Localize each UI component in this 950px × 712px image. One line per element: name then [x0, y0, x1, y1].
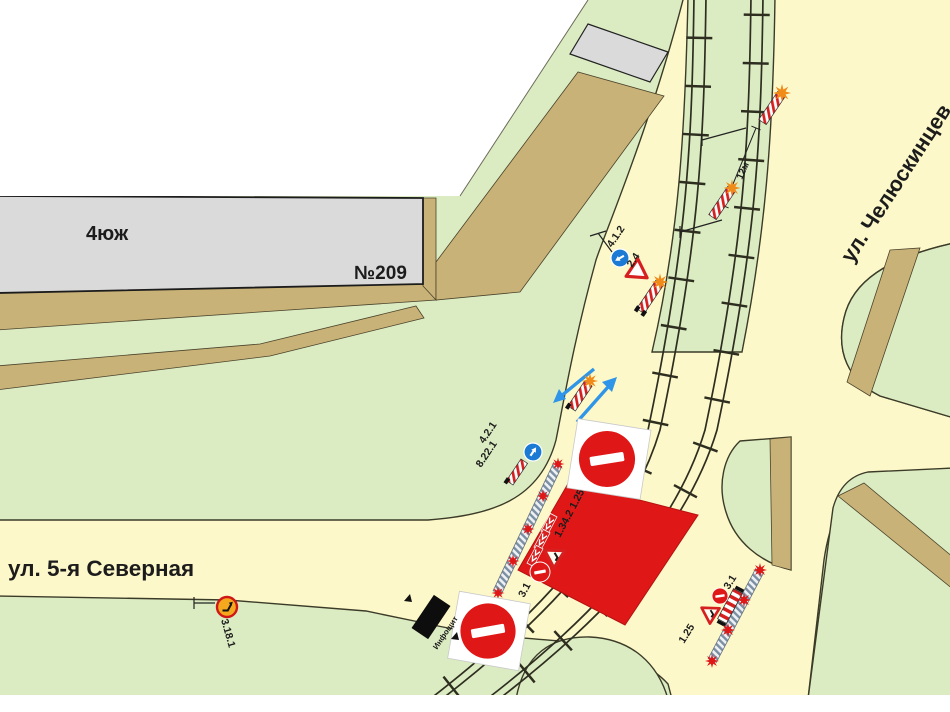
lamp-icon: [582, 373, 598, 389]
no-turn-sign-icon: [217, 597, 237, 617]
lamp-icon: [773, 84, 791, 102]
lamp-icon: [753, 563, 767, 577]
unmapped-strip-bottom: [0, 695, 950, 712]
lamp-icon: [537, 490, 550, 503]
lamp-icon: [552, 458, 565, 471]
street-name-severnaya: ул. 5-я Северная: [8, 556, 194, 581]
lamp-icon: [737, 593, 751, 607]
no-entry-sign-north: [567, 419, 651, 500]
no-entry-sign-south: [448, 591, 531, 670]
traffic-scheme-map: 12м 4.1.2 2.4: [0, 0, 950, 712]
lamp-icon: [705, 654, 719, 668]
lamp-icon: [522, 523, 535, 536]
lamp-icon: [652, 274, 669, 291]
building-block-label: 4юж: [86, 223, 129, 245]
sidewalk-central-island: [770, 437, 791, 570]
map-canvas: 12м 4.1.2 2.4: [0, 0, 950, 712]
lamp-icon: [721, 623, 735, 637]
building-number-label: №209: [354, 263, 407, 284]
sidewalk-right-of-building: [423, 198, 436, 300]
lamp-icon: [724, 180, 741, 197]
lamp-icon: [507, 555, 520, 568]
